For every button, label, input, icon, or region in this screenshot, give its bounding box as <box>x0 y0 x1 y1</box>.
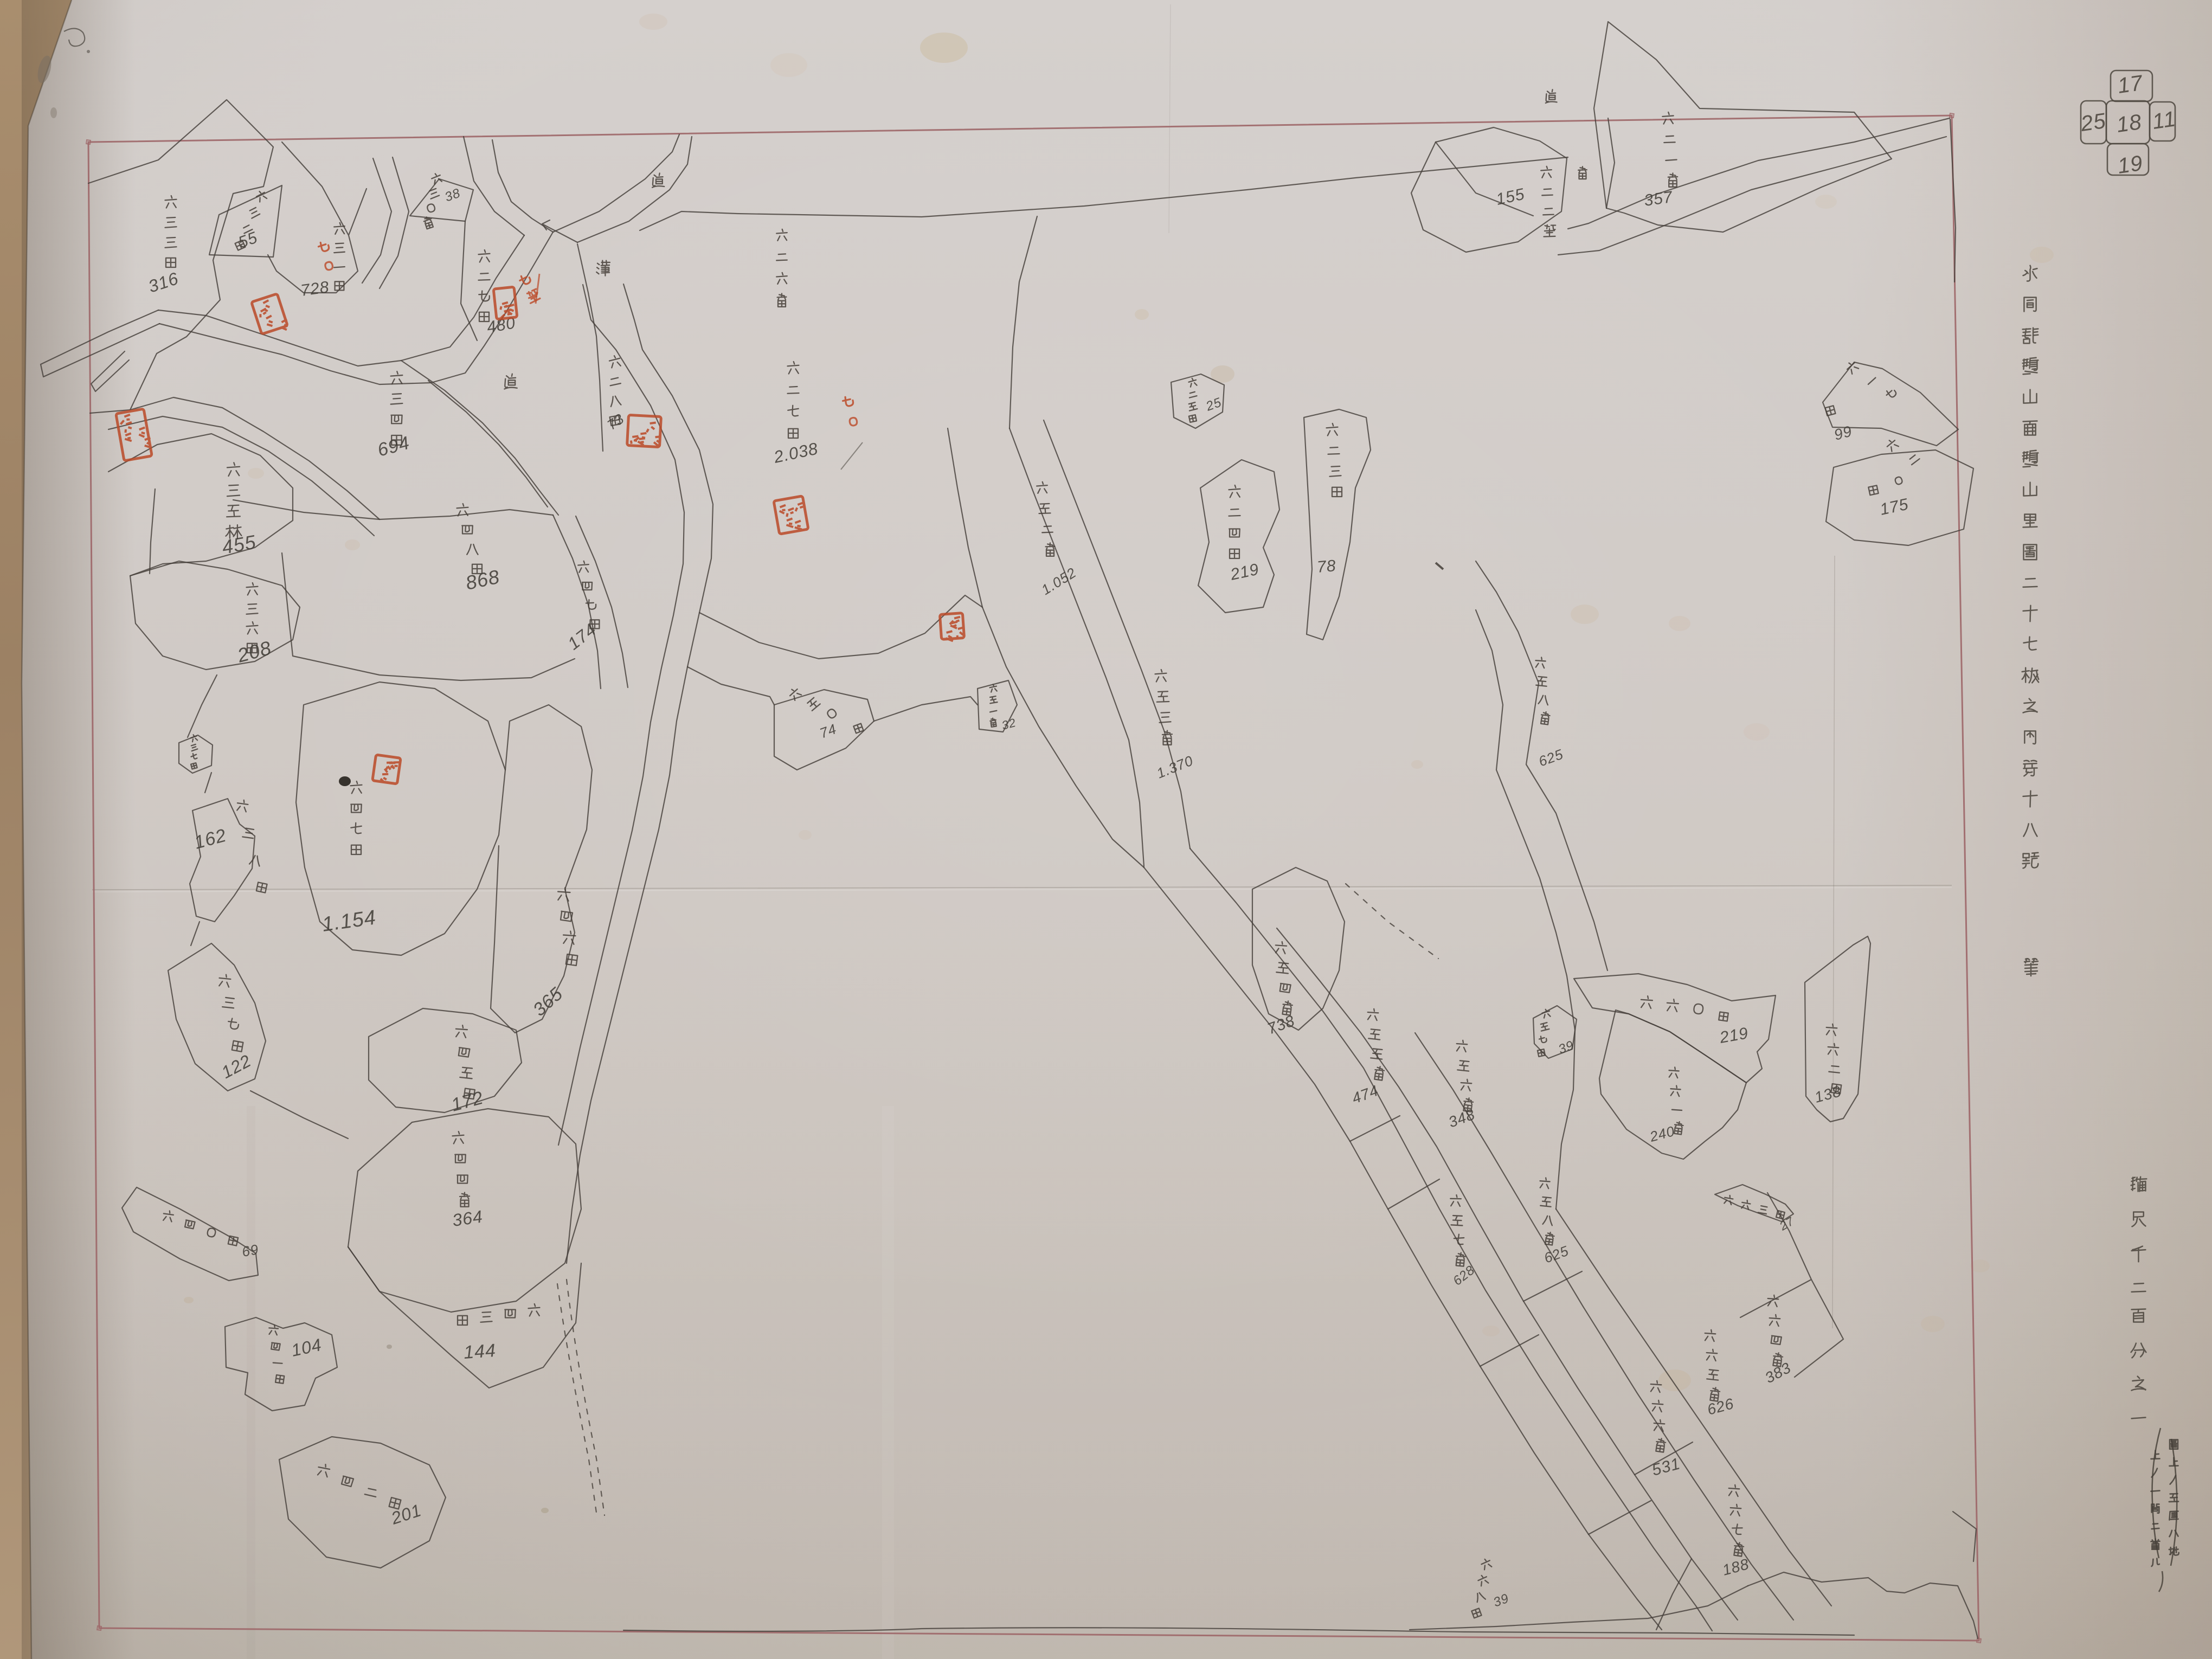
svg-text:69: 69 <box>241 1241 260 1260</box>
svg-text:144: 144 <box>463 1340 497 1363</box>
svg-text:11: 11 <box>2151 107 2177 134</box>
svg-text:18: 18 <box>2115 110 2143 137</box>
svg-text:19: 19 <box>2116 151 2144 178</box>
svg-text:78: 78 <box>1316 557 1337 576</box>
svg-text:25: 25 <box>2079 109 2107 136</box>
svg-text:17: 17 <box>2116 71 2145 98</box>
